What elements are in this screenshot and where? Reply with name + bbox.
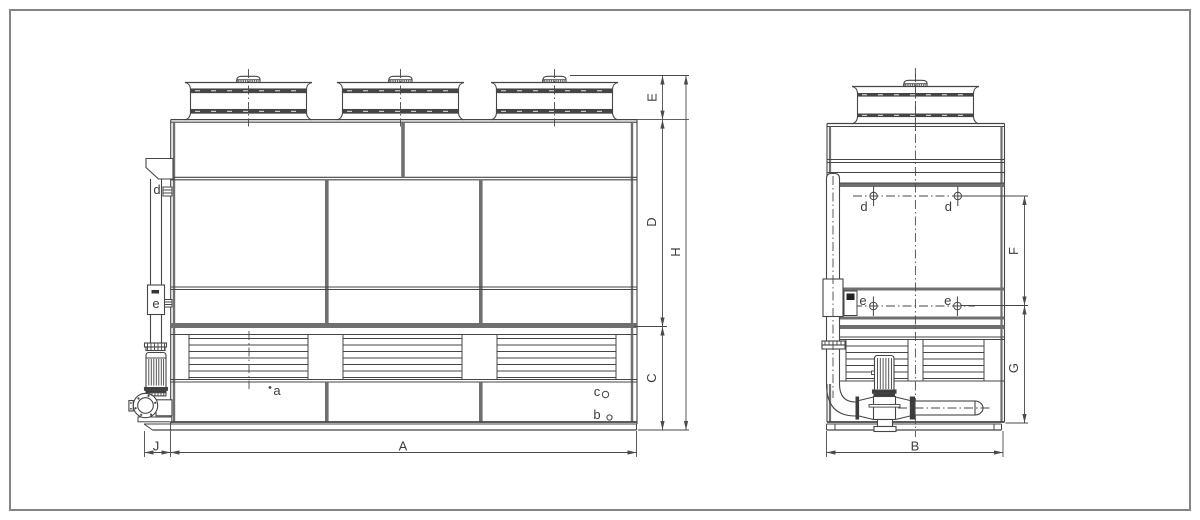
svg-text:D: D [644,217,659,226]
svg-text:B: B [911,439,920,454]
svg-text:a: a [273,383,281,398]
svg-text:E: E [645,93,660,102]
svg-text:d: d [860,199,867,214]
svg-text:d: d [945,199,952,214]
svg-text:e: e [944,293,951,308]
svg-text:F: F [1006,247,1021,255]
svg-text:A: A [399,439,408,454]
svg-text:H: H [668,247,683,256]
svg-text:J: J [153,439,160,454]
svg-text:d: d [153,182,160,197]
svg-text:c: c [594,384,601,399]
svg-text:b: b [593,407,600,422]
svg-text:e: e [859,293,866,308]
svg-text:e: e [152,296,159,311]
svg-text:G: G [1006,363,1021,373]
svg-text:C: C [644,373,659,382]
